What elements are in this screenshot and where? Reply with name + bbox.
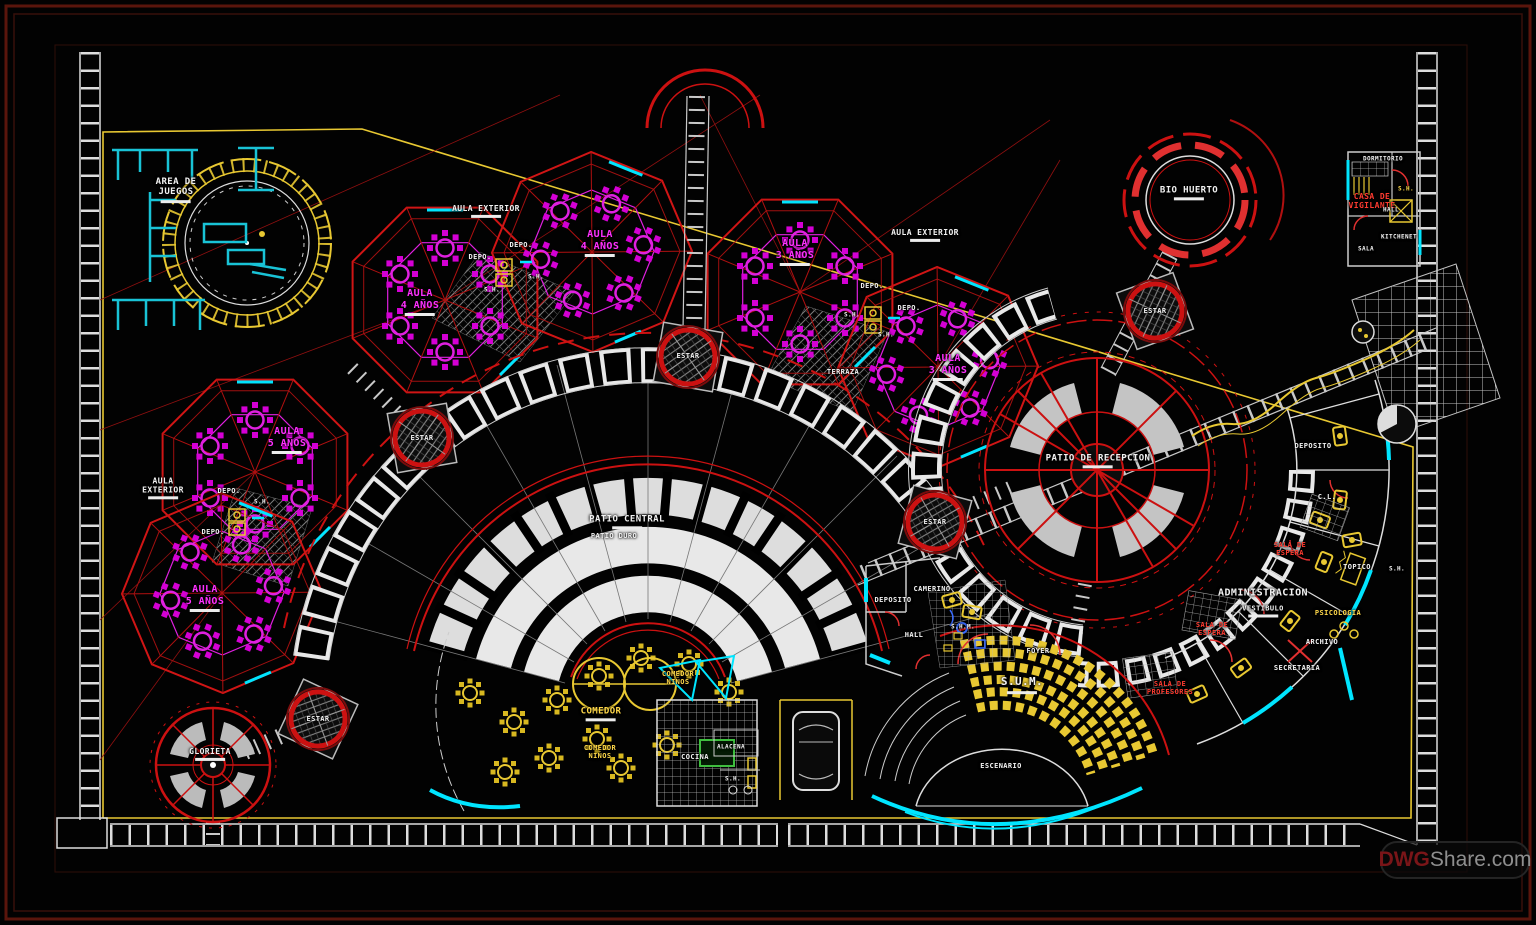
site-plan-drawing bbox=[0, 0, 1536, 925]
cad-canvas: AREA DE JUEGOSAULA EXTERIORDEPO.DEPO.S.H… bbox=[0, 0, 1536, 925]
watermark: DWGShare.com bbox=[1380, 841, 1530, 879]
watermark-dwg: DWG bbox=[1379, 848, 1430, 872]
watermark-share: Share.com bbox=[1430, 848, 1532, 872]
